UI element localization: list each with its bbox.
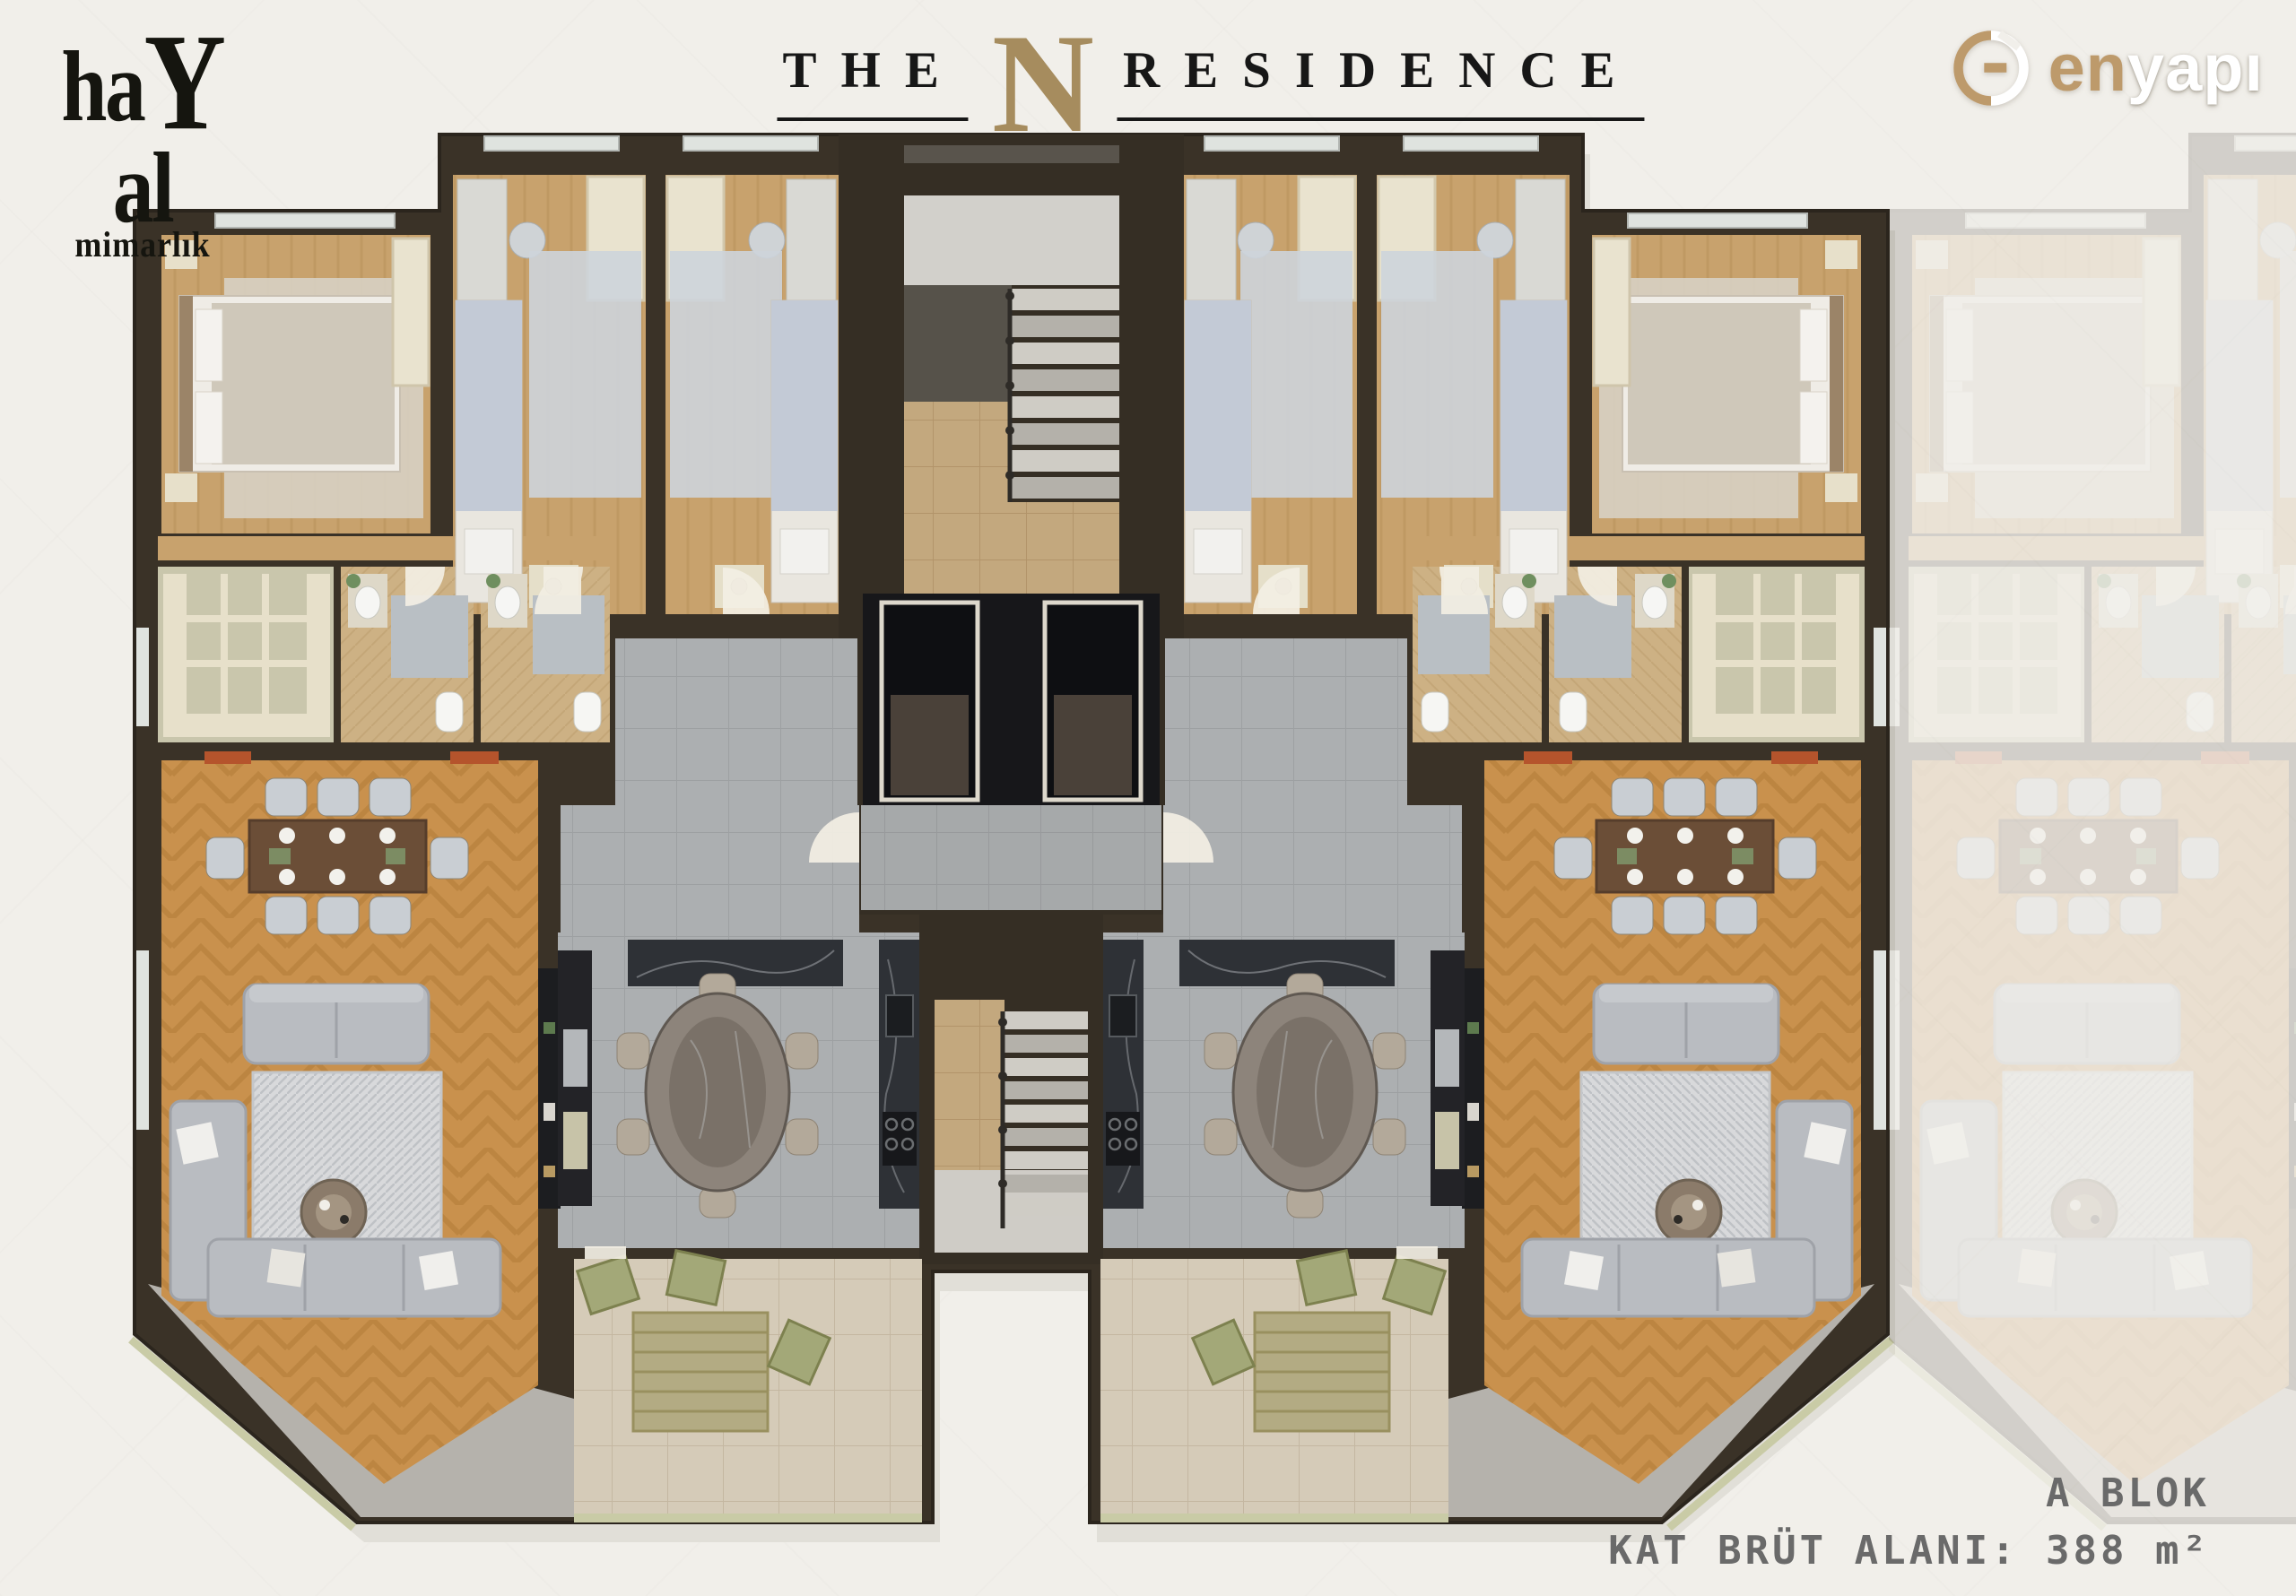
staircase-upper — [904, 145, 1119, 594]
coffee-table — [301, 1180, 366, 1245]
entry-hall — [615, 638, 857, 805]
tv-unit — [538, 968, 561, 1209]
project-title: THE N RESIDENCE — [777, 16, 1644, 139]
hallway — [158, 536, 610, 560]
title-word-the: THE — [777, 16, 968, 121]
building-a-block — [131, 134, 1892, 1528]
staircase-lower — [919, 910, 1103, 1264]
corridor — [861, 805, 1161, 910]
sofa — [244, 984, 429, 1063]
radiator — [450, 751, 499, 764]
block-name: A BLOK — [1608, 1465, 2210, 1522]
developer-wordmark: enyapı — [2048, 35, 2264, 101]
floor-plan-poster: hayal mimarlık THE N RESIDENCE enyapı A … — [0, 0, 2296, 1596]
floor-plan — [0, 0, 2296, 1596]
architect-logo: hayal mimarlık — [30, 9, 255, 265]
title-letter-n: N — [992, 16, 1094, 139]
developer-logo: enyapı — [1948, 25, 2264, 111]
apartment-left — [131, 136, 922, 1528]
architect-logo-word: hayal — [51, 9, 235, 236]
title-word-residence: RESIDENCE — [1118, 16, 1645, 121]
radiator — [204, 751, 251, 764]
apartment-right — [1100, 136, 1892, 1528]
plan-info: A BLOK KAT BRÜT ALANI: 388 m² — [1608, 1465, 2210, 1580]
enyapi-circle-mark-icon — [1948, 25, 2034, 111]
floor-gross-area: KAT BRÜT ALANI: 388 m² — [1608, 1522, 2210, 1580]
ghost-block — [1882, 134, 2296, 1528]
architect-logo-subtitle: mimarlık — [42, 223, 244, 265]
elevator-shafts — [863, 594, 1160, 805]
architect-logo-y: y — [144, 17, 224, 149]
